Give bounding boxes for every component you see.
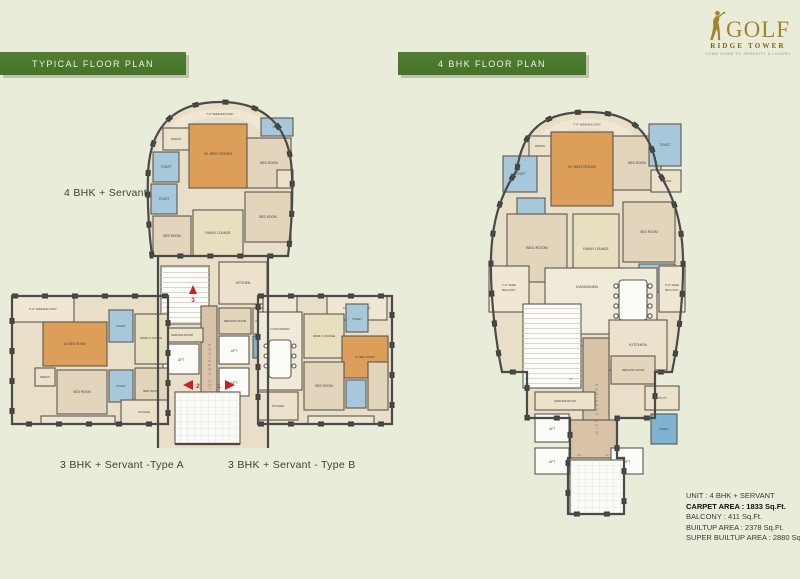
header-bar-typical: TYPICAL FLOOR PLAN xyxy=(0,52,186,75)
balcony-label: 9'-0" WIDE xyxy=(665,283,679,287)
room-label-toilet: TOILET xyxy=(352,317,362,321)
logo-title: GOLF xyxy=(726,18,790,42)
balcony xyxy=(41,416,115,424)
room-label-bedroom: BED ROOM xyxy=(260,161,278,165)
corridor-label: WIDE CORRIDOR xyxy=(208,342,212,395)
room-label-kitchen: KITCHEN xyxy=(272,404,284,408)
room-bedroom xyxy=(368,362,388,410)
room-label-service: SERVICE ROOM xyxy=(554,399,576,403)
staircase-tiles xyxy=(175,392,240,444)
room-label-bedroom: BED ROOM xyxy=(163,234,181,238)
staircase-tiles xyxy=(570,460,624,514)
golfer-icon xyxy=(706,10,726,42)
stair-up-label: UP xyxy=(605,453,609,457)
spec-line-builtup: BUILTUP AREA : 2378 Sq.Ft. xyxy=(686,523,800,534)
stair-up-label: UP xyxy=(569,377,573,381)
room-label-master-bedroom: M. BED ROOM xyxy=(204,151,231,156)
room-label-bedroom: BED ROOM xyxy=(526,245,548,250)
balcony-label: 7'-0" WIDE BALCONY xyxy=(573,123,601,127)
room-label-living-dining: LIVING/DINING xyxy=(576,285,599,289)
spec-line-super-builtup: SUPER BUILTUP AREA : 2880 Sq.Ft. xyxy=(686,533,800,544)
balcony-label: 5'-0" WIDE BALCONY xyxy=(29,307,57,311)
header-4bhk-label: 4 BHK FLOOR PLAN xyxy=(438,59,546,69)
room-label-kitchen: KITCHEN xyxy=(138,410,150,414)
room-label-kitchen: KITCHEN xyxy=(236,281,251,285)
room-label-bedroom: BED ROOM xyxy=(143,389,159,393)
balcony xyxy=(308,416,374,424)
label-type-b: 3 BHK + Servant - Type B xyxy=(228,459,356,471)
room-label-servant: SERVANT ROOM xyxy=(224,319,247,323)
room-label-utility: UTILITY xyxy=(657,396,668,400)
room-label-family-lounge: FAMILY LOUNGE xyxy=(313,334,335,338)
header-typical-label: TYPICAL FLOOR PLAN xyxy=(32,59,154,69)
corridor-label: WIDE CORRIDOR xyxy=(595,382,599,435)
balcony-label: 7'-0" WIDE xyxy=(502,283,516,287)
room-label-family-lounge: FAMILY LOUNGE xyxy=(205,231,230,235)
spec-line-carpet-area: CARPET AREA : 1833 Sq.Ft. xyxy=(686,502,800,513)
room-label-dress: DRESS xyxy=(171,137,181,141)
room-toilet xyxy=(346,380,366,408)
room-label-toilet: TOILET xyxy=(659,427,669,431)
dining-table xyxy=(614,280,652,320)
room-label-bedroom: BED ROOM xyxy=(315,384,333,388)
typical-floor-plan: 7'-0" WIDE BALCONY DRESS M. BED ROOM TOI… xyxy=(5,92,395,448)
unit-specs: UNIT : 4 BHK + SERVANT CARPET AREA : 183… xyxy=(686,491,800,544)
room-label-toilet: TOILET xyxy=(158,197,169,201)
room-label-dress: DRESS xyxy=(40,375,50,379)
brochure-page: { "brand": { "title": "GOLF", "subtitle"… xyxy=(0,0,800,579)
room-label-toilet: TOILET xyxy=(116,324,126,328)
room-label-family-lounge: FAMILY LOUNGE xyxy=(583,247,608,251)
room-master-bedroom xyxy=(189,124,247,188)
room-label-bedroom: BED ROOM xyxy=(73,390,91,394)
balcony-label: 7'-0" WIDE BALCONY xyxy=(206,112,234,116)
room-label-toilet: TOILET xyxy=(160,165,171,169)
room-master-bedroom xyxy=(551,132,613,206)
spec-line-balcony: BALCONY : 411 Sq.Ft. xyxy=(686,512,800,523)
stair-dn-label: DN xyxy=(577,453,581,457)
room-label-bedroom: BED ROOM xyxy=(640,230,658,234)
room-label-servant: SERVANT ROOM xyxy=(622,368,645,372)
staircase-treads xyxy=(523,304,581,388)
room-label-master-bedroom: M. BED ROOM xyxy=(355,355,375,359)
room-label-kitchen: KITCHEN xyxy=(629,342,647,347)
label-type-a: 3 BHK + Servant -Type A xyxy=(60,459,184,471)
room-label-bedroom: BED ROOM xyxy=(628,161,646,165)
room-label-toilet: TOILET xyxy=(116,384,126,388)
lift-label: LIFT xyxy=(178,358,185,362)
four-bhk-floor-plan: 7'-0" WIDE BALCONY DRESS M. BED ROOM TOI… xyxy=(487,108,687,518)
room-label-master-bedroom: M. BED ROOM xyxy=(64,342,86,346)
room-label-master-bedroom: M. BED ROOM xyxy=(568,164,595,169)
balcony-label: BALCONY xyxy=(665,288,679,292)
room-label-living-dining: LIVING/DINING xyxy=(270,327,290,331)
logo-subtitle: RIDGE TOWER xyxy=(698,42,798,50)
brand-logo: GOLF RIDGE TOWER COME HOME TO SERENITY &… xyxy=(698,10,798,56)
room-label-toilet: TOILET xyxy=(659,143,670,147)
balcony-label: BALCONY xyxy=(502,288,516,292)
room-label-dress: DRESS xyxy=(535,144,545,148)
header-bar-4bhk: 4 BHK FLOOR PLAN xyxy=(398,52,586,75)
room-label-bedroom: BED ROOM xyxy=(259,215,277,219)
logo-tagline: COME HOME TO SERENITY & LUXURY xyxy=(698,51,798,56)
lift-label: LIFT xyxy=(549,460,556,464)
room-label-service: SERVICE ROOM xyxy=(171,333,193,337)
spec-line-unit: UNIT : 4 BHK + SERVANT xyxy=(686,491,800,502)
lift-label: LIFT xyxy=(231,349,238,353)
lift-label: LIFT xyxy=(549,427,556,431)
